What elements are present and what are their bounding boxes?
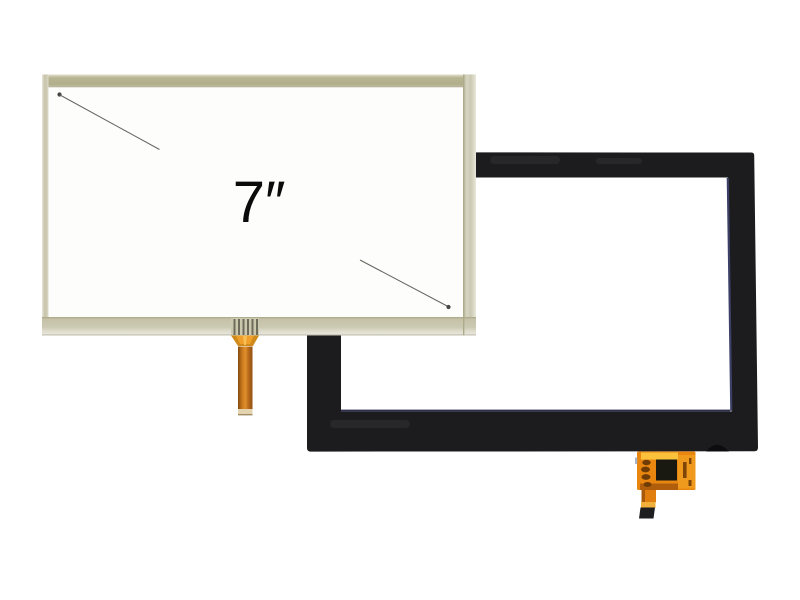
svg-text:7″: 7″ [233, 170, 286, 235]
